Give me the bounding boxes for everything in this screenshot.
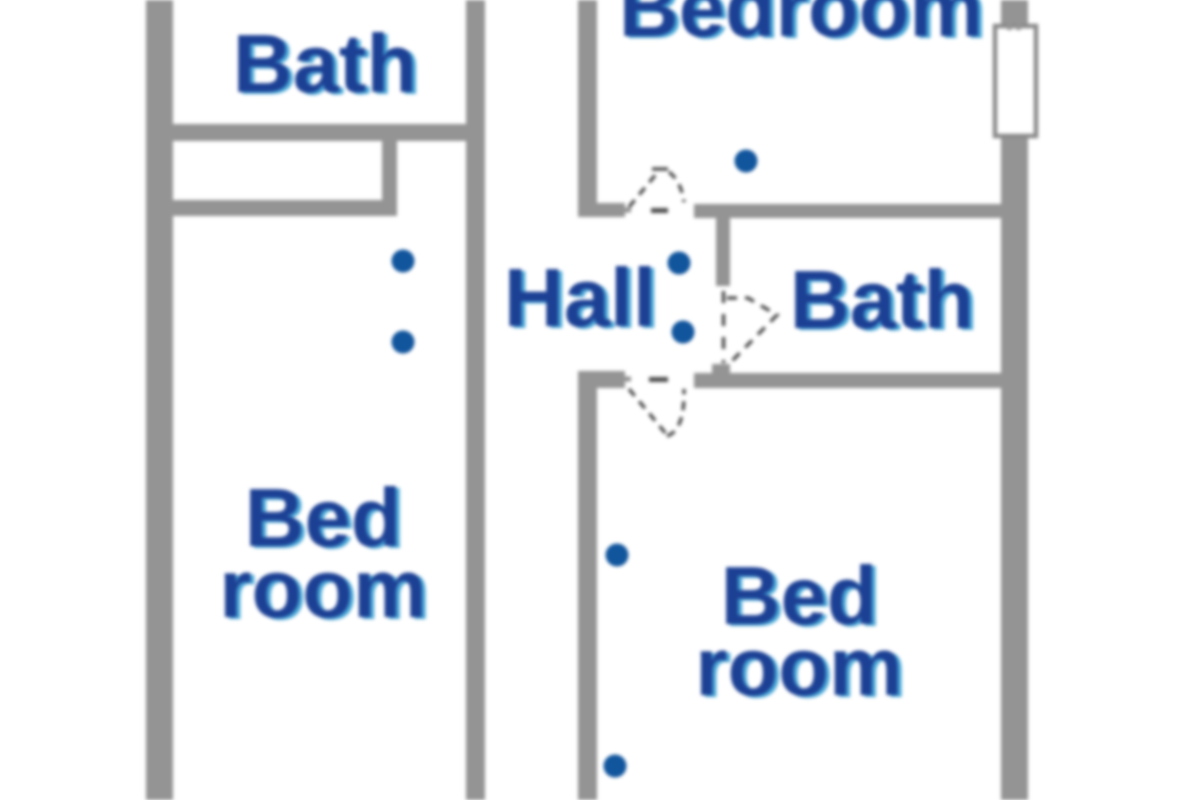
svg-text:Bath: Bath: [790, 253, 974, 346]
svg-text:Bedroom: Bedroom: [619, 0, 983, 54]
svg-text:room: room: [695, 620, 903, 713]
svg-text:room: room: [219, 542, 427, 635]
svg-text:Hall: Hall: [504, 251, 656, 344]
svg-text:Bath: Bath: [233, 17, 417, 110]
